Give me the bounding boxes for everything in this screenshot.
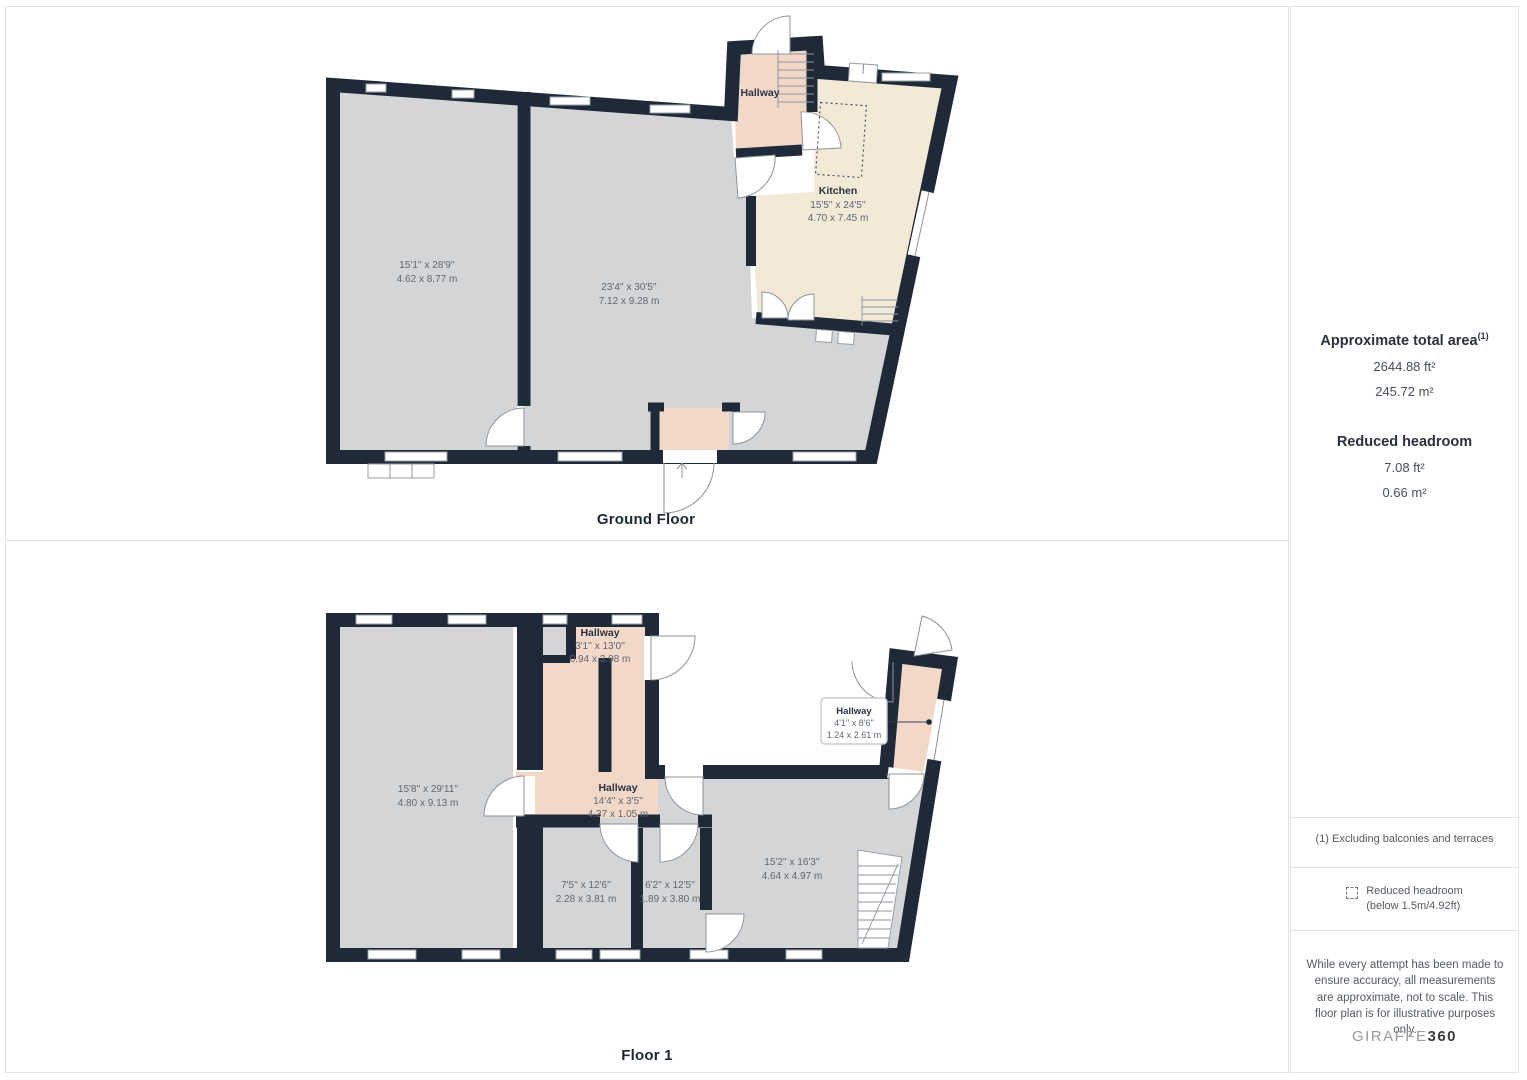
ground-room-main-imperial: 23'4'' x 30'5'' [601,282,656,293]
floor1-hallway-right-imperial: 4'1'' x 8'6'' [834,718,874,728]
floor1-hallway-right-metric: 1.24 x 2.61 m [827,730,882,740]
floor1-hallway-mid-metric: 4.37 x 1.05 m [588,809,649,820]
ground-room-left-metric: 4.62 x 8.77 m [397,274,458,285]
floor1-room-a-metric: 2.28 x 3.81 m [556,894,617,905]
kitchen-label: Kitchen [819,185,858,197]
total-area-m: 245.72 m² [1291,384,1518,399]
ground-entrance-door-arc [752,16,790,54]
ground-floor-plan: Hallway 15'1'' x 28'9'' 4.62 x 8.77 m 23… [0,0,1290,540]
floor1-room-right-imperial: 15'2'' x 16'3'' [764,857,819,868]
ground-room-left-imperial: 15'1'' x 28'9'' [399,260,454,271]
floor-1-title: Floor 1 [497,1047,797,1064]
floor1-hallway-right-label: Hallway [836,706,872,717]
ground-hallway-label: Hallway [740,87,779,99]
floor1-room-b-metric: 1.89 x 3.80 m [640,894,701,905]
kitchen-metric: 4.70 x 7.45 m [808,213,869,224]
entrance-arrow-icon [677,463,687,478]
sidebar-divider-1 [1291,817,1518,818]
floor1-room-left-metric: 4.80 x 9.13 m [398,798,459,809]
total-area-block: Approximate total area(1) 2644.88 ft² 24… [1291,331,1518,399]
floor1-hallway-top-imperial: 3'1'' x 13'0'' [575,641,625,652]
giraffe360-logo: GIRAFFE360 [1291,1028,1518,1045]
reduced-headroom-heading: Reduced headroom [1291,434,1518,450]
reduced-headroom-legend-text: Reduced headroom (below 1.5m/4.92ft) [1366,884,1463,914]
total-area-ft: 2644.88 ft² [1291,359,1518,374]
ground-room-main-metric: 7.12 x 9.28 m [599,296,660,307]
ground-floor-title: Ground Floor [496,511,796,528]
info-sidebar: Approximate total area(1) 2644.88 ft² 24… [1290,6,1519,1073]
floor1-room-left-imperial: 15'8'' x 29'11'' [398,784,458,795]
reduced-headroom-icon [1346,887,1358,899]
floor-1-plan: Hallway 4'1'' x 8'6'' 1.24 x 2.61 m Hall… [0,540,1290,1080]
ground-vestibule [659,408,729,455]
reduced-headroom-m: 0.66 m² [1291,485,1518,500]
sidebar-divider-2 [1291,867,1518,868]
area-footnote: (1) Excluding balconies and terraces [1291,833,1518,845]
floor1-hallway-mid-label: Hallway [598,782,637,794]
floor1-hallway-top-label: Hallway [580,627,619,639]
kitchen-imperial: 15'5'' x 24'5'' [810,200,865,211]
ground-room-left [340,92,517,450]
floor1-hallway-top-metric: 0.94 x 3.98 m [570,654,631,665]
floor1-room-a-imperial: 7'5'' x 12'6'' [561,880,611,891]
total-area-heading: Approximate total area(1) [1291,331,1518,349]
floor1-hallway-mid-imperial: 14'4'' x 3'5'' [593,796,643,807]
floor1-closet [540,626,568,658]
reduced-headroom-ft: 7.08 ft² [1291,460,1518,475]
sidebar-divider-3 [1291,930,1518,931]
floor1-room-right-metric: 4.64 x 4.97 m [762,871,823,882]
footnote-marker: (1) [1478,331,1489,341]
floor1-room-b-imperial: 6'2'' x 12'5'' [645,880,695,891]
reduced-headroom-legend: Reduced headroom (below 1.5m/4.92ft) [1291,884,1518,914]
disclaimer-text: While every attempt has been made to ens… [1305,957,1505,1039]
reduced-headroom-block: Reduced headroom 7.08 ft² 0.66 m² [1291,434,1518,500]
